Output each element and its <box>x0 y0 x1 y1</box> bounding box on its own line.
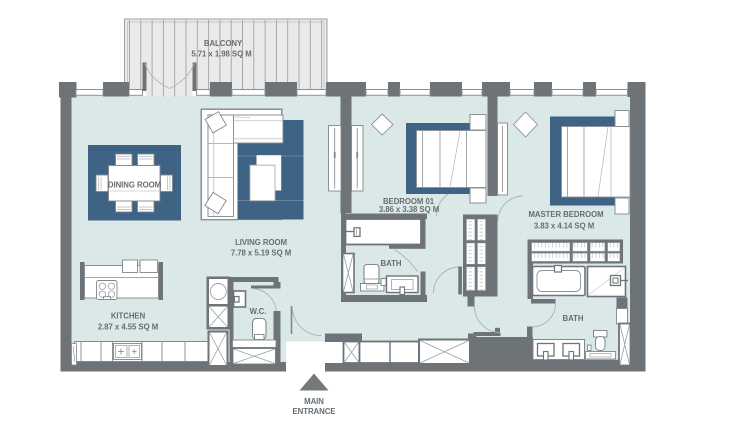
svg-text:BATH: BATH <box>563 314 584 323</box>
svg-text:MAIN: MAIN <box>304 397 324 406</box>
svg-text:7.78 x 5.19 SQ M: 7.78 x 5.19 SQ M <box>231 249 291 258</box>
svg-text:LIVING ROOM: LIVING ROOM <box>235 238 287 247</box>
svg-text:W.C.: W.C. <box>250 307 267 316</box>
svg-text:MASTER BEDROOM: MASTER BEDROOM <box>528 210 603 219</box>
svg-text:ENTRANCE: ENTRANCE <box>293 407 336 416</box>
svg-text:BATH: BATH <box>381 259 402 268</box>
svg-text:5.71 x 1.98 SQ M: 5.71 x 1.98 SQ M <box>191 50 251 59</box>
svg-text:2.87 x 4.55 SQ M: 2.87 x 4.55 SQ M <box>98 323 158 332</box>
svg-text:DINING ROOM: DINING ROOM <box>108 181 161 190</box>
svg-text:3.86 x 3.38 SQ M: 3.86 x 3.38 SQ M <box>379 205 439 214</box>
svg-text:3.83 x 4.14 SQ M: 3.83 x 4.14 SQ M <box>534 222 594 231</box>
svg-text:KITCHEN: KITCHEN <box>111 312 146 321</box>
svg-text:BALCONY: BALCONY <box>204 39 243 48</box>
